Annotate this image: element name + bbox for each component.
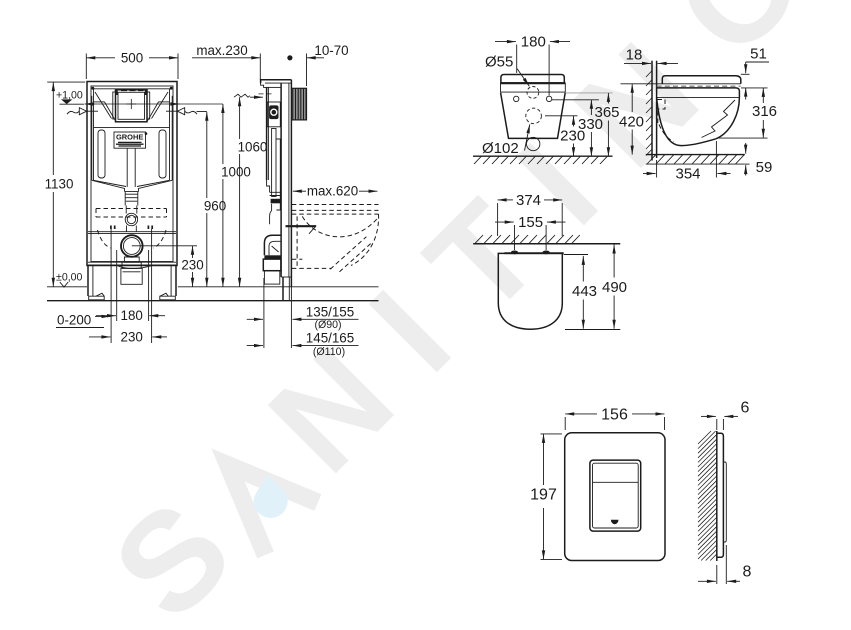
svg-text:Ø102: Ø102 — [482, 140, 519, 157]
svg-text:500: 500 — [121, 50, 143, 65]
svg-text:156: 156 — [601, 406, 628, 423]
svg-text:8: 8 — [743, 563, 752, 580]
svg-text:6: 6 — [741, 399, 750, 416]
svg-text:145/165: 145/165 — [306, 331, 354, 346]
svg-text:max.230: max.230 — [196, 43, 247, 58]
svg-text:(Ø90): (Ø90) — [314, 319, 341, 331]
svg-text:443: 443 — [572, 283, 597, 300]
svg-text:max.620: max.620 — [307, 184, 358, 199]
svg-text:316: 316 — [752, 103, 777, 120]
svg-text:230: 230 — [181, 258, 203, 273]
svg-text:GROHE: GROHE — [116, 133, 144, 142]
svg-text:374: 374 — [516, 192, 541, 209]
svg-text:10-70: 10-70 — [314, 43, 348, 58]
svg-text:Ø55: Ø55 — [485, 53, 513, 70]
svg-text:59: 59 — [756, 159, 773, 176]
svg-text:960: 960 — [204, 199, 226, 214]
svg-text:0-200: 0-200 — [57, 313, 91, 328]
svg-text:230: 230 — [560, 127, 585, 144]
svg-text:180: 180 — [521, 34, 546, 51]
svg-text:18: 18 — [626, 47, 643, 64]
svg-text:135/155: 135/155 — [306, 304, 354, 319]
svg-text:±0,00: ±0,00 — [56, 272, 83, 284]
svg-text:197: 197 — [530, 487, 557, 504]
svg-text:180: 180 — [121, 308, 143, 323]
svg-text:490: 490 — [602, 279, 627, 296]
svg-text:354: 354 — [675, 165, 700, 182]
svg-text:155: 155 — [518, 214, 543, 231]
svg-text:230: 230 — [121, 329, 143, 344]
svg-text:1130: 1130 — [45, 177, 74, 192]
svg-text:1000: 1000 — [221, 165, 251, 180]
svg-text:1060: 1060 — [238, 140, 268, 155]
svg-text:(Ø110): (Ø110) — [313, 346, 345, 358]
svg-text:420: 420 — [619, 114, 644, 131]
svg-text:51: 51 — [750, 45, 767, 62]
